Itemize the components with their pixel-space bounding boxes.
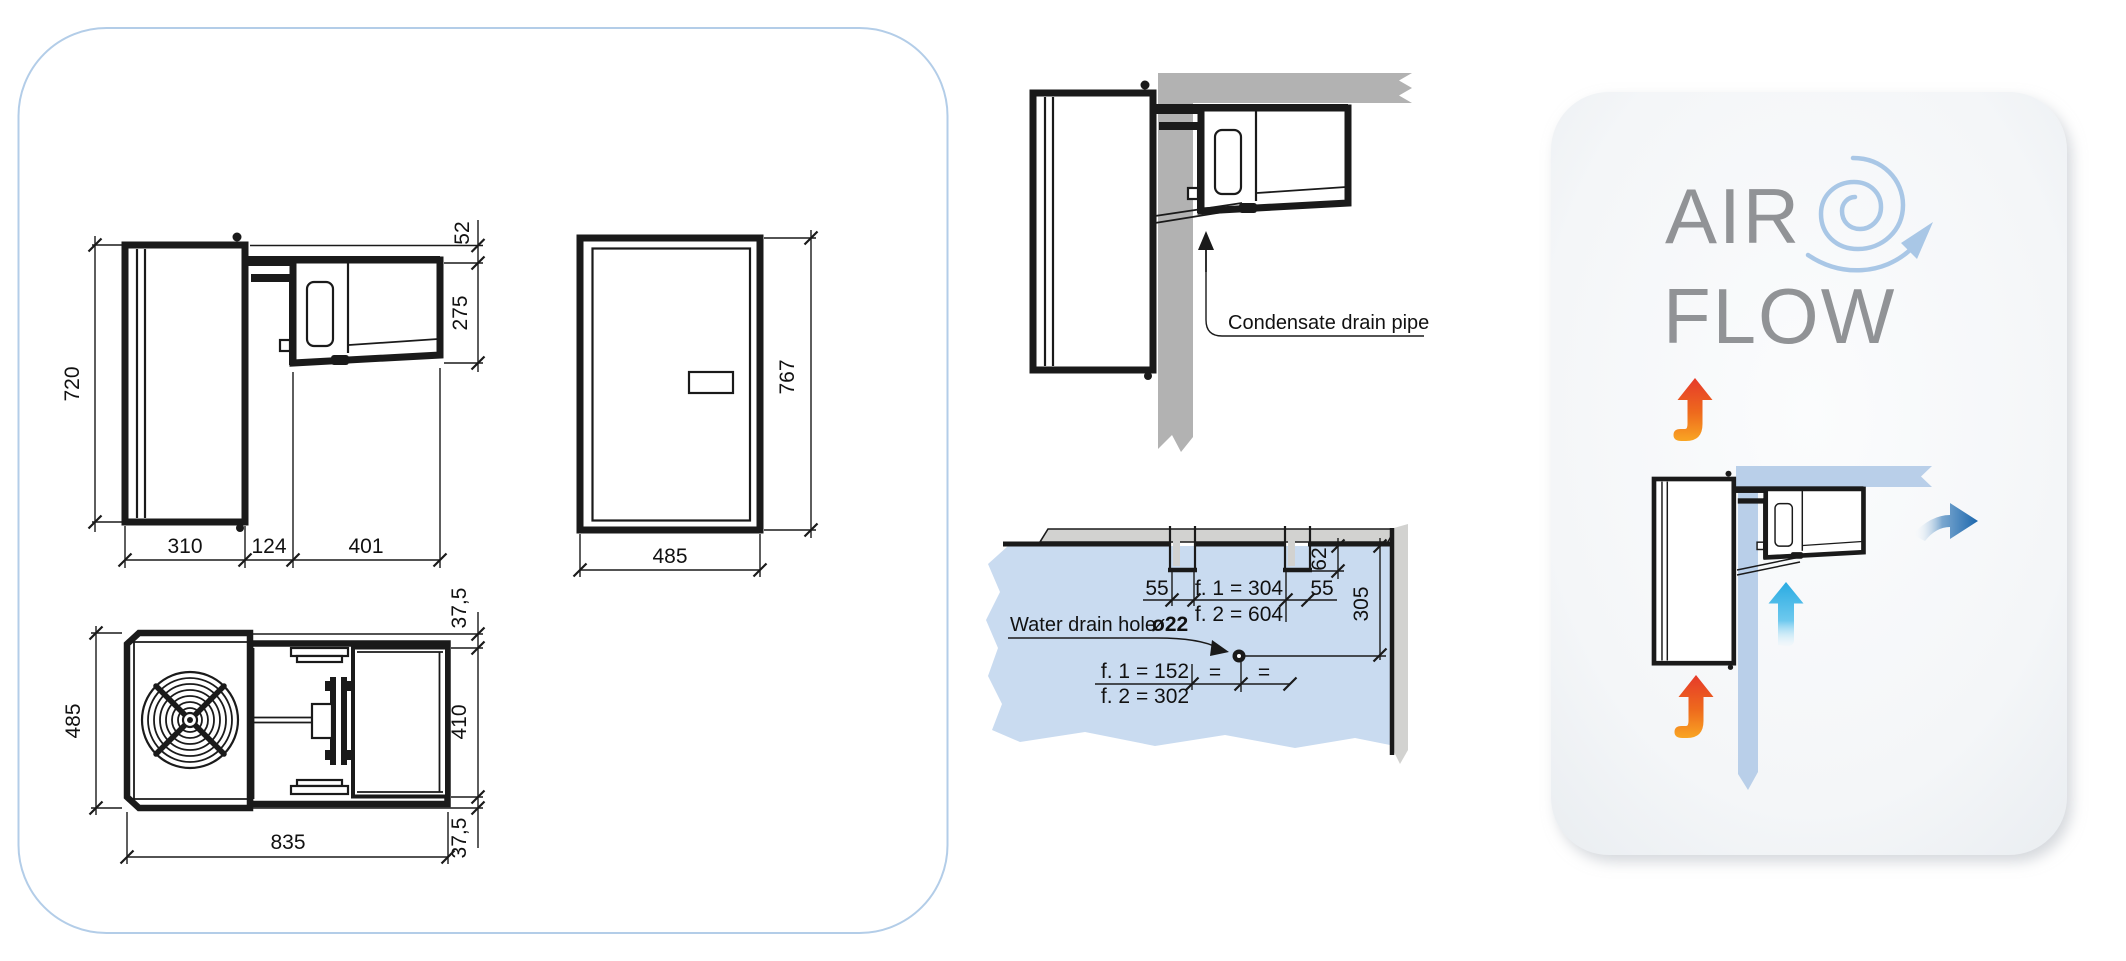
dim-top-depth: 485 xyxy=(62,703,85,738)
condensate-label: Condensate drain pipe xyxy=(1228,312,1429,334)
dim-margin-right: 55 xyxy=(1310,577,1333,600)
dim-f1-bottom: f. 1 = 152 xyxy=(1101,660,1189,683)
equals-right: = xyxy=(1258,661,1270,684)
dim-side-width-right: 401 xyxy=(348,535,383,558)
water-drain-diagram: 55 f. 1 = 304 f. 2 = 604 55 62 305 Water… xyxy=(986,524,1408,764)
dim-front-width: 485 xyxy=(652,545,687,568)
dim-side-height: 720 xyxy=(61,366,84,401)
dim-side-width-mid: 124 xyxy=(251,535,286,558)
panel-top-face xyxy=(1040,529,1395,542)
dim-wall-offset: 305 xyxy=(1350,586,1373,621)
dim-top-width: 835 xyxy=(270,831,305,854)
dim-side-top-right: 52 xyxy=(451,221,474,244)
dim-top-condenser: 410 xyxy=(448,704,471,739)
water-drain-label: Water drain hole xyxy=(1010,614,1156,636)
ceiling-panel xyxy=(1158,73,1412,103)
equals-left: = xyxy=(1209,661,1221,684)
dim-notch-depth: 62 xyxy=(1308,547,1331,570)
dim-f2-bottom: f. 2 = 302 xyxy=(1101,685,1189,708)
dim-side-width-left: 310 xyxy=(167,535,202,558)
corner-wall xyxy=(1392,524,1408,764)
installation-sheet: 720 310 124 401 52 275 xyxy=(0,0,2126,961)
condenser-coil-top xyxy=(353,648,447,797)
water-drain-diameter: ø22 xyxy=(1152,613,1188,636)
dim-top-offset-top: 37,5 xyxy=(448,588,471,629)
dim-front-height: 767 xyxy=(776,359,799,394)
airflow-ceiling-band xyxy=(1736,466,1932,487)
dim-margin-left: 55 xyxy=(1145,577,1168,600)
airflow-title-line1: AIR xyxy=(1665,172,1801,260)
control-panel-cutout xyxy=(689,372,733,393)
sheet-svg: 720 310 124 401 52 275 xyxy=(0,0,2126,961)
dimension-panel: 720 310 124 401 52 275 xyxy=(19,28,948,933)
dim-f1-top: f. 1 = 304 xyxy=(1195,577,1283,600)
airflow-panel: AIR FLOW xyxy=(1551,92,2067,855)
dim-f2-top: f. 2 = 604 xyxy=(1195,603,1283,626)
airflow-wall-band xyxy=(1738,466,1758,790)
dim-side-right: 275 xyxy=(449,295,472,330)
airflow-title-line2: FLOW xyxy=(1663,272,1896,360)
condensate-diagram: Condensate drain pipe xyxy=(1033,73,1429,452)
